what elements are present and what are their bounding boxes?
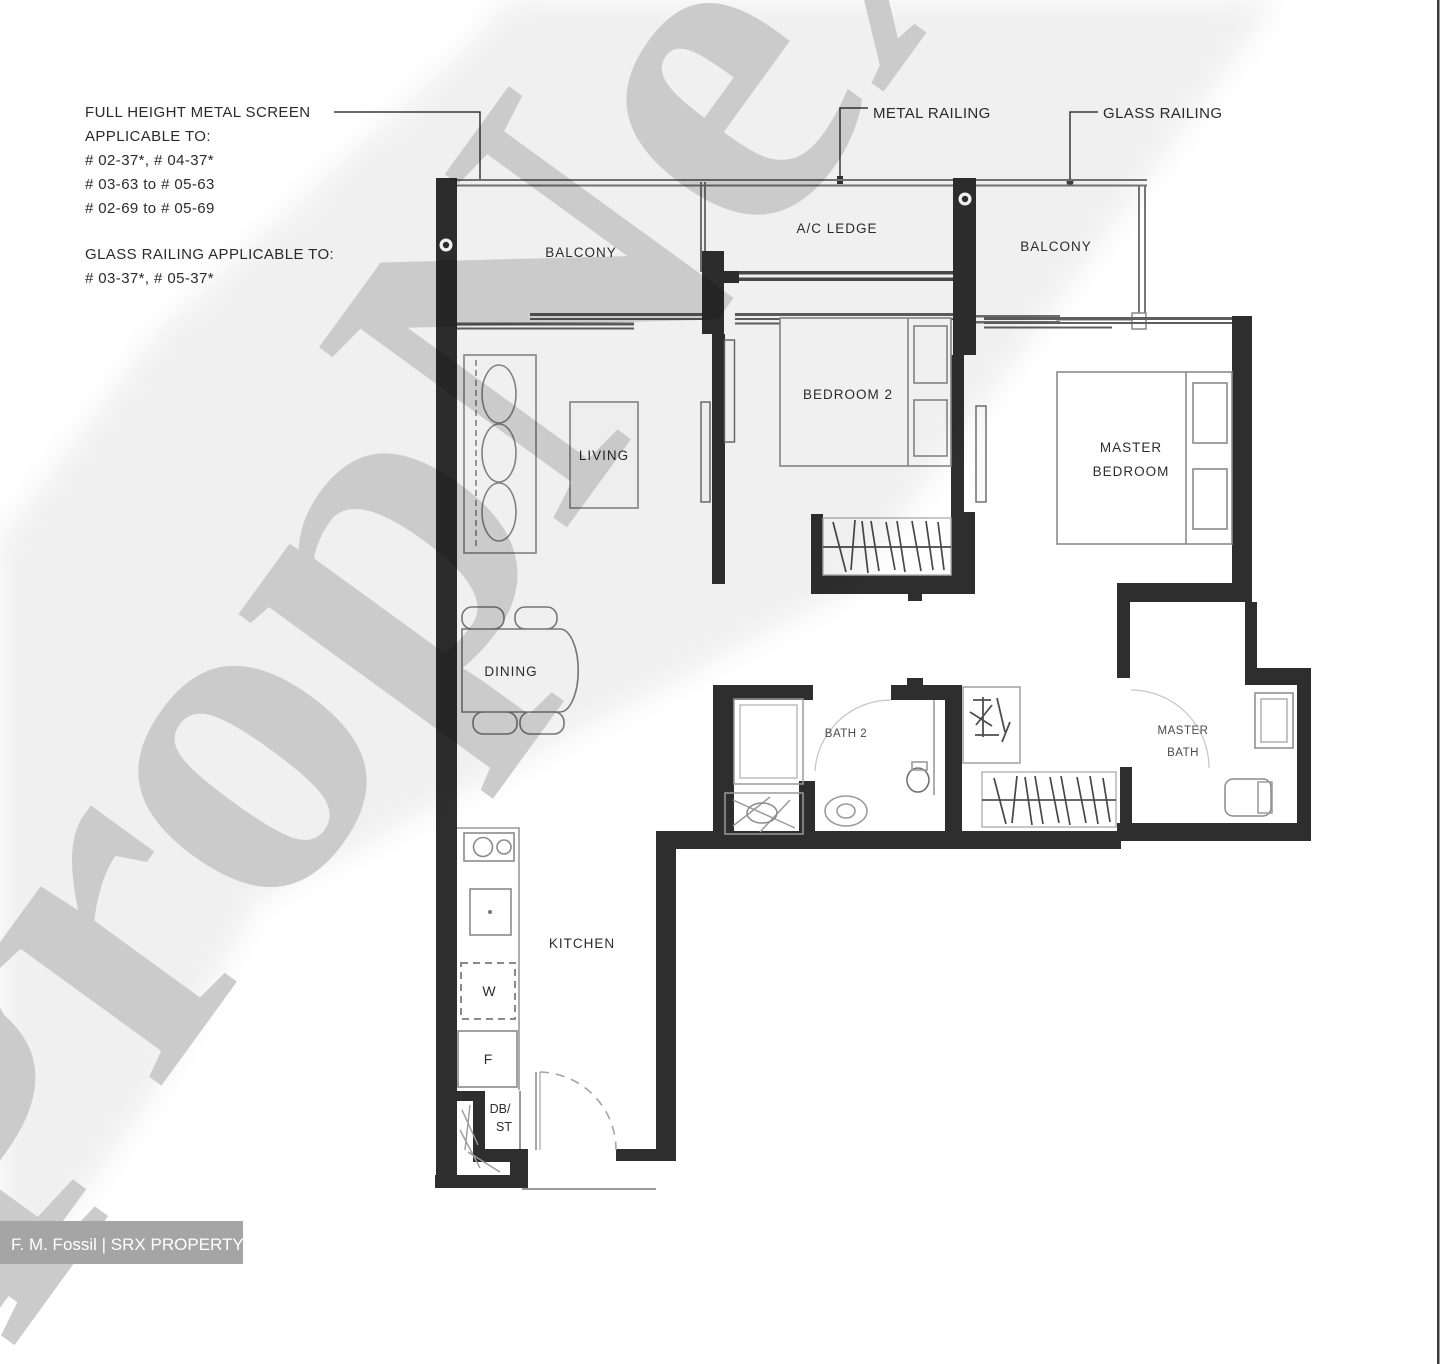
svg-text:DB/: DB/ xyxy=(490,1102,511,1116)
svg-text:FULL HEIGHT METAL SCREEN: FULL HEIGHT METAL SCREEN xyxy=(85,104,310,121)
svg-text:MASTER: MASTER xyxy=(1100,440,1162,455)
svg-text:F. M. Fossil | SRX PROPERTY: F. M. Fossil | SRX PROPERTY xyxy=(11,1235,244,1254)
svg-text:F: F xyxy=(484,1051,493,1067)
svg-text:BEDROOM: BEDROOM xyxy=(1093,464,1170,479)
svg-text:MASTER: MASTER xyxy=(1158,725,1209,737)
svg-text:ST: ST xyxy=(496,1120,512,1134)
svg-text:BATH: BATH xyxy=(1167,747,1199,759)
svg-text:# 02-69 to # 05-69: # 02-69 to # 05-69 xyxy=(85,200,215,217)
svg-text:KITCHEN: KITCHEN xyxy=(549,936,615,951)
svg-text:# 03-63 to # 05-63: # 03-63 to # 05-63 xyxy=(85,176,215,193)
svg-text:W: W xyxy=(482,983,496,999)
svg-text:BATH 2: BATH 2 xyxy=(825,728,867,740)
svg-text:# 03-37*, # 05-37*: # 03-37*, # 05-37* xyxy=(85,270,214,287)
svg-text:# 02-37*, # 04-37*: # 02-37*, # 04-37* xyxy=(85,152,214,169)
svg-text:APPLICABLE TO:: APPLICABLE TO: xyxy=(85,128,211,145)
